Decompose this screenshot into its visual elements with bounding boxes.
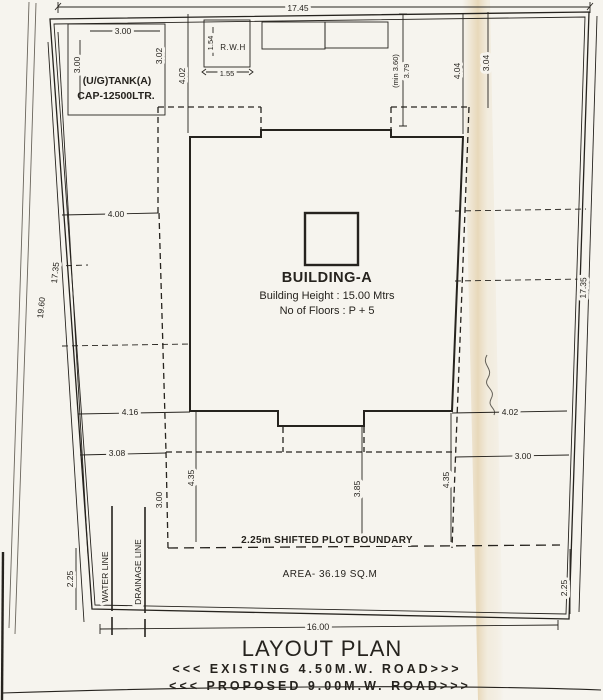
dim-col-mid: 3.85 — [352, 480, 362, 497]
rwh-label: R.W.H — [220, 43, 246, 52]
dim-tank-height: 3.00 — [72, 56, 82, 73]
shifted-boundary-note: 2.25m SHIFTED PLOT BOUNDARY — [241, 535, 413, 546]
dim-plot-bottom: 16.00 — [307, 622, 330, 632]
dim-plot-top: 17.45 — [287, 3, 309, 13]
dim-rear-right2: 3.00 — [515, 451, 532, 461]
dim-col-left: 4.35 — [186, 469, 196, 486]
area-note: AREA- 36.19 SQ.M — [283, 569, 378, 580]
building-height-note: Building Height : 15.00 Mtrs — [259, 290, 395, 302]
dim-rwh-width: 1.55 — [220, 69, 235, 78]
dim-side-left: 4.00 — [108, 209, 125, 219]
dim-col-left2: 3.00 — [154, 491, 164, 508]
dim-shift-right: 2.25 — [559, 579, 569, 596]
dim-rwh-height: 1.54 — [206, 36, 215, 51]
dim-front-setback-min: (min 3.60) — [391, 54, 400, 88]
drainage-line-label: DRAINAGE LINE — [133, 539, 143, 605]
building-name: BUILDING-A — [282, 270, 372, 286]
dim-rear-right: 4.02 — [502, 407, 519, 417]
scanned-layout-plan: 17.45 3.00 3.00 3.02 (U/G)TANK(A) CAP-12… — [0, 0, 603, 700]
layout-plan-drawing: 17.45 3.00 3.00 3.02 (U/G)TANK(A) CAP-12… — [0, 0, 603, 700]
dim-rear-left2: 3.08 — [109, 448, 126, 458]
proposed-road-label: <<< PROPOSED 9.00M.W. ROAD>>> — [169, 679, 471, 693]
dim-rear-left: 4.16 — [122, 407, 139, 417]
dim-front-right2: 3.04 — [481, 54, 491, 71]
dim-col-right: 4.35 — [441, 471, 451, 488]
existing-road-label: <<< EXISTING 4.50M.W. ROAD>>> — [172, 662, 461, 676]
plan-title: LAYOUT PLAN — [242, 636, 403, 661]
water-line-label: WATER LINE — [100, 551, 110, 602]
dim-right-side: 17.35 — [578, 277, 589, 299]
dim-tank-width: 3.00 — [115, 26, 132, 36]
tank-label-line1: (U/G)TANK(A) — [83, 75, 152, 87]
building-floors-note: No of Floors : P + 5 — [280, 305, 375, 317]
dim-front-setback: 3.79 — [402, 64, 411, 79]
dim-tank-side: 3.02 — [154, 47, 164, 64]
tank-label-line2: CAP-12500LTR. — [77, 90, 154, 102]
dim-shift-left: 2.25 — [65, 570, 75, 587]
dim-tank-gap: 4.02 — [177, 67, 187, 84]
dim-front-right: 4.04 — [452, 62, 462, 79]
